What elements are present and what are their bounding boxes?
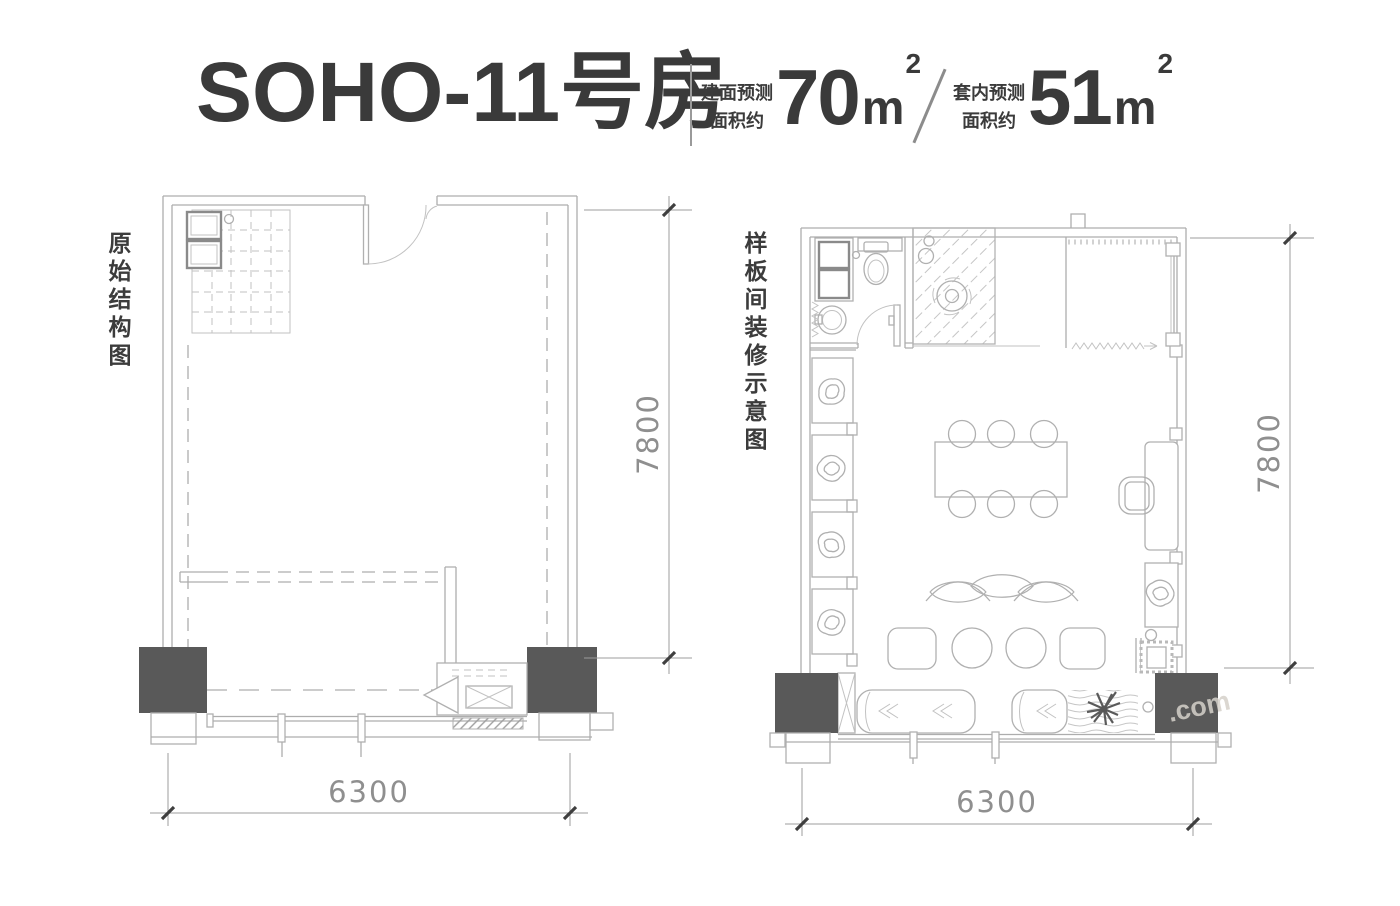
original-structure-plan: 6300 7800 bbox=[139, 196, 692, 826]
cabinet bbox=[1145, 563, 1178, 627]
side-table bbox=[1060, 628, 1105, 669]
toilet-icon bbox=[864, 242, 888, 285]
floorplan-sheet: SOHO-11号房 建面预测 面积约 70 m2 套内预测 面积约 51 m2 … bbox=[0, 0, 1400, 906]
curtain-icon bbox=[1072, 343, 1144, 349]
ac-utility-box bbox=[424, 663, 527, 729]
shower-room bbox=[913, 228, 1040, 346]
model-room-plan: 6300 7800 .com bbox=[770, 214, 1314, 836]
chair-icon bbox=[949, 421, 976, 448]
floorplan-drawing: 6300 7800 bbox=[0, 0, 1400, 906]
grille-icon bbox=[453, 718, 523, 729]
chair-icon bbox=[988, 491, 1015, 518]
left-plan-height-dim: 7800 bbox=[631, 393, 665, 475]
display-cabinets bbox=[810, 350, 857, 666]
plant-icon bbox=[815, 606, 848, 638]
bathroom-door-icon bbox=[857, 305, 900, 346]
stool-row bbox=[888, 628, 1105, 669]
tiled-area bbox=[187, 210, 290, 333]
window-seat bbox=[857, 690, 975, 733]
right-plan-dimensions: 6300 7800 bbox=[785, 224, 1314, 836]
right-plan-width-dim: 6300 bbox=[956, 785, 1038, 819]
left-plan-dimensions: 6300 7800 bbox=[150, 196, 692, 826]
sink-icon bbox=[815, 306, 846, 334]
dining-set bbox=[935, 421, 1067, 518]
left-plan-dashed-structure bbox=[180, 212, 547, 712]
desk-area bbox=[1119, 442, 1178, 712]
side-table bbox=[888, 628, 936, 669]
plant-icon bbox=[819, 379, 845, 404]
dining-table bbox=[935, 442, 1067, 497]
chair-icon bbox=[988, 421, 1015, 448]
drain-icon bbox=[225, 215, 234, 224]
column-left bbox=[775, 673, 838, 733]
left-plan-width-dim: 6300 bbox=[328, 775, 410, 809]
structural-columns bbox=[139, 647, 613, 744]
bathroom bbox=[810, 228, 913, 348]
stool-icon bbox=[1006, 628, 1046, 668]
wardrobe bbox=[1066, 237, 1180, 350]
plant-icon bbox=[817, 530, 846, 560]
chair-icon bbox=[949, 491, 976, 518]
window-seat-zone bbox=[785, 673, 1218, 764]
window-seat bbox=[1012, 690, 1067, 733]
chair-icon bbox=[1031, 491, 1058, 518]
chair-icon bbox=[1031, 421, 1058, 448]
dryer-icon bbox=[819, 270, 849, 298]
column-right bbox=[527, 647, 597, 713]
washer-icon bbox=[819, 242, 849, 268]
right-plan-height-dim: 7800 bbox=[1252, 412, 1286, 494]
stool-icon bbox=[952, 628, 992, 668]
desk bbox=[1145, 442, 1178, 550]
structural-columns-right bbox=[770, 673, 1231, 763]
wave-bench bbox=[926, 575, 1078, 602]
curtain-arrow-icon bbox=[1144, 343, 1157, 350]
shower-glass bbox=[913, 228, 995, 344]
plant-icon bbox=[814, 450, 850, 486]
column-left bbox=[139, 647, 207, 713]
entry-door-icon bbox=[364, 205, 438, 264]
left-plan-window bbox=[151, 714, 592, 757]
